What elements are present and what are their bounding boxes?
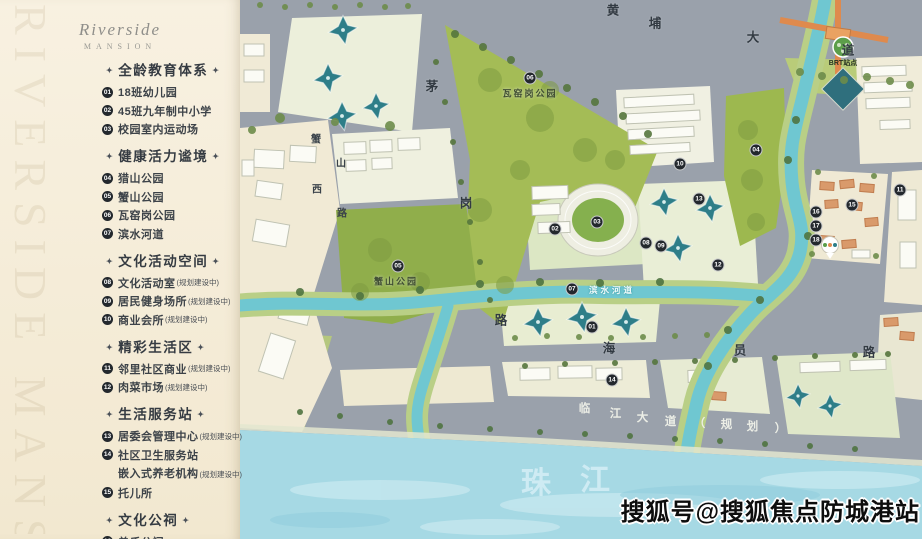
tree-icon	[257, 2, 263, 8]
tree-icon	[672, 436, 678, 442]
tree-icon	[747, 213, 765, 231]
tree-icon	[478, 68, 502, 92]
river-name-char: 江	[580, 455, 612, 499]
tree-icon	[792, 116, 800, 124]
legend-item-label: 校园室内运动场	[118, 121, 199, 137]
tree-icon	[526, 104, 554, 132]
tree-icon	[772, 355, 778, 361]
tree-icon	[612, 360, 618, 366]
legend-item-label: 托儿所	[118, 485, 153, 501]
legend-item-note: (规划建设中)	[165, 314, 208, 325]
legend-item-label: 45班九年制中小学	[118, 103, 212, 119]
tree-icon	[863, 73, 871, 81]
diamond-icon: ✦	[197, 343, 205, 352]
diamond-icon: ✦	[106, 343, 114, 352]
tree-icon	[591, 98, 599, 106]
diamond-icon: ✦	[197, 410, 205, 419]
legend-section-title: ✦健康活力谧境✦	[102, 145, 240, 165]
tree-icon	[815, 169, 821, 175]
river-name-char: 珠	[521, 458, 553, 502]
diamond-icon: ✦	[106, 516, 114, 525]
legend-item-note: (规划建设中)	[200, 470, 243, 479]
legend-item: 13居委会管理中心(规划建设中)	[102, 428, 240, 444]
tree-icon	[512, 335, 518, 341]
legend-item-note: (规划建设中)	[200, 431, 243, 442]
tree-icon	[477, 259, 483, 265]
diamond-icon: ✦	[106, 152, 114, 161]
tree-icon	[738, 120, 758, 140]
legend-item-label: 滨水河道	[118, 226, 164, 242]
tree-icon	[382, 4, 388, 10]
tree-icon	[536, 278, 544, 286]
tree-icon	[368, 238, 392, 262]
watermark-sohu: 搜狐号@搜狐焦点防城港站	[621, 492, 920, 527]
tree-icon	[437, 423, 443, 429]
tree-icon	[818, 72, 826, 80]
legend-item: 04猎山公园	[102, 170, 240, 186]
map-marker: 06	[524, 72, 537, 85]
tree-icon	[337, 413, 343, 419]
legend-item-label: 邻里社区商业	[118, 361, 187, 377]
tree-icon	[433, 59, 439, 65]
tree-icon	[885, 351, 891, 357]
tree-icon	[450, 139, 456, 145]
map-marker: 03	[591, 216, 604, 229]
legend-section-title-text: 全龄教育体系	[118, 63, 208, 78]
tree-icon	[496, 276, 514, 294]
map-marker: 14	[606, 374, 619, 387]
map-marker: 09	[655, 240, 668, 253]
legend-item: 05蟹山公园	[102, 189, 240, 205]
legend-section-title-text: 精彩生活区	[118, 340, 193, 355]
tree-icon	[873, 253, 879, 259]
legend-item-label: 居委会管理中心	[118, 428, 199, 444]
legend-item-number: 15	[102, 487, 113, 498]
tree-icon	[479, 43, 487, 51]
tree-icon	[275, 113, 285, 123]
tree-icon	[762, 441, 768, 447]
legend-item-number: 08	[102, 277, 113, 288]
tree-icon	[537, 429, 543, 435]
legend-item-number: 13	[102, 431, 113, 442]
tree-icon	[852, 446, 858, 452]
legend-item-number: 01	[102, 87, 113, 98]
map-marker: 11	[894, 184, 907, 197]
tree-icon	[906, 81, 914, 89]
map-marker: 05	[392, 260, 405, 273]
map-marker: 16	[810, 206, 823, 219]
tree-icon	[468, 198, 492, 222]
legend-item-number: 05	[102, 191, 113, 202]
legend-section: ✦健康活力谧境✦04猎山公园05蟹山公园06瓦窑岗公园07滨水河道	[102, 145, 240, 242]
legend-item-number: 12	[102, 382, 113, 393]
tree-icon	[596, 279, 604, 287]
legend-item-label: 猎山公园	[118, 170, 164, 186]
tree-icon	[405, 3, 411, 9]
legend-item-label: 社区卫生服务站	[118, 447, 199, 463]
legend-section: ✦精彩生活区✦11邻里社区商业(规划建设中)12肉菜市场(规划建设中)	[102, 336, 240, 396]
map-marker: 15	[846, 199, 859, 212]
tree-icon	[387, 419, 393, 425]
legend-item: 12肉菜市场(规划建设中)	[102, 379, 240, 395]
diamond-icon: ✦	[212, 257, 220, 266]
legend-section-title-text: 文化公祠	[118, 513, 178, 528]
legend-section-title: ✦全龄教育体系✦	[102, 59, 240, 79]
tree-icon	[507, 56, 515, 64]
map-marker: 13	[693, 193, 706, 206]
legend-item-number: 06	[102, 210, 113, 221]
tree-icon	[886, 77, 894, 85]
tree-icon	[573, 138, 597, 162]
tree-icon	[692, 358, 698, 364]
tree-icon	[652, 359, 658, 365]
tree-icon	[297, 409, 303, 415]
legend-item-label: 曾氏公祠	[118, 534, 164, 539]
legend-item: 16曾氏公祠	[102, 534, 240, 539]
legend-item-label: 肉菜市场	[118, 379, 164, 395]
brand-name: Riverside	[40, 20, 200, 40]
legend-item: 14社区卫生服务站	[102, 447, 240, 463]
legend-item-label: 瓦窑岗公园	[118, 207, 176, 223]
legend-sidebar: RIVERSIDE MANSION Riverside MANSION ✦全龄教…	[0, 0, 240, 539]
map-marker: 08	[640, 237, 653, 250]
legend-item-number: 14	[102, 449, 113, 460]
tree-icon	[522, 363, 528, 369]
legend-item-number: 07	[102, 228, 113, 239]
tree-icon	[442, 99, 448, 105]
legend-item-label: 商业会所	[118, 312, 164, 328]
map-marker: 17	[810, 220, 823, 233]
brt-station-icon	[833, 37, 853, 57]
map-marker: 01	[586, 321, 599, 334]
tree-icon	[741, 169, 763, 191]
legend-item-number: 04	[102, 173, 113, 184]
legend-item: 15托儿所	[102, 485, 240, 501]
legend-item: 0245班九年制中小学	[102, 103, 240, 119]
sidebar-watermark-text: RIVERSIDE MANSION	[4, 4, 57, 534]
legend-item-number: 09	[102, 296, 113, 307]
tree-icon	[331, 118, 339, 126]
tree-icon	[487, 297, 493, 303]
tree-icon	[416, 286, 424, 294]
legend-item: 07滨水河道	[102, 226, 240, 242]
legend-item: 08文化活动室(规划建设中)	[102, 275, 240, 291]
legend-item-label: 18班幼儿园	[118, 84, 177, 100]
tree-icon	[332, 4, 338, 10]
master-plan-map: 黄埔大道茅岗路蟹山西路海员路临江大道（规划）瓦窑岗公园蟹山公园滨水河道BRT站点…	[240, 0, 922, 539]
brand-logo: Riverside MANSION	[40, 20, 200, 51]
legend-item-line2: 嵌入式养老机构(规划建设中)	[102, 464, 240, 482]
legend-section-title: ✦精彩生活区✦	[102, 336, 240, 356]
legend-section-title: ✦生活服务站✦	[102, 403, 240, 423]
tree-icon	[732, 357, 738, 363]
tree-icon	[672, 333, 678, 339]
legend-item: 03校园室内运动场	[102, 121, 240, 137]
map-marker: 02	[549, 223, 562, 236]
legend-item-note: (规划建设中)	[188, 296, 231, 307]
tree-icon	[756, 296, 764, 304]
tree-icon	[619, 112, 627, 120]
legend-item-label: 蟹山公园	[118, 189, 164, 205]
tree-icon	[724, 326, 732, 334]
brand-subname: MANSION	[40, 42, 200, 51]
legend-item-number: 10	[102, 314, 113, 325]
legend-section: ✦文化公祠✦16曾氏公祠17李氏公祠18梁氏公祠	[102, 509, 240, 539]
diamond-icon: ✦	[182, 516, 190, 525]
legend-item-label: 居民健身场所	[118, 293, 187, 309]
diamond-icon: ✦	[106, 410, 114, 419]
legend-section: ✦生活服务站✦13居委会管理中心(规划建设中)14社区卫生服务站嵌入式养老机构(…	[102, 403, 240, 501]
legend-item: 11邻里社区商业(规划建设中)	[102, 361, 240, 377]
tree-icon	[307, 2, 313, 8]
tree-icon	[356, 292, 364, 300]
legend-item-note: (规划建设中)	[177, 277, 220, 288]
tree-icon	[544, 333, 550, 339]
project-pin-icon	[821, 236, 839, 258]
legend-item-number: 02	[102, 105, 113, 116]
tree-icon	[385, 121, 395, 131]
tree-icon	[510, 160, 530, 180]
legend-item: 09居民健身场所(规划建设中)	[102, 293, 240, 309]
tree-icon	[784, 156, 792, 164]
tree-icon	[809, 251, 815, 257]
tree-icon	[812, 353, 818, 359]
tree-icon	[605, 150, 625, 170]
legend-item-label: 嵌入式养老机构	[118, 468, 199, 480]
tree-icon	[717, 438, 723, 444]
legend-item-note: (规划建设中)	[165, 382, 208, 393]
legend-item: 10商业会所(规划建设中)	[102, 312, 240, 328]
map-marker: 10	[674, 158, 687, 171]
diamond-icon: ✦	[106, 257, 114, 266]
diamond-icon: ✦	[106, 66, 114, 75]
map-marker: 04	[750, 144, 763, 157]
legend-item: 06瓦窑岗公园	[102, 207, 240, 223]
tree-icon	[840, 76, 848, 84]
legend-list: ✦全龄教育体系✦0118班幼儿园0245班九年制中小学03校园室内运动场✦健康活…	[102, 59, 240, 539]
tree-icon	[796, 68, 804, 76]
tree-icon	[582, 431, 588, 437]
tree-icon	[451, 30, 459, 38]
diamond-icon: ✦	[212, 66, 220, 75]
map-marker: 07	[566, 283, 579, 296]
legend-section: ✦全龄教育体系✦0118班幼儿园0245班九年制中小学03校园室内运动场	[102, 59, 240, 137]
tree-icon	[608, 335, 614, 341]
legend-item-number: 11	[102, 363, 113, 374]
tree-icon	[627, 433, 633, 439]
tree-icon	[644, 130, 652, 138]
diamond-icon: ✦	[212, 152, 220, 161]
screenshot-root: RIVERSIDE MANSION Riverside MANSION ✦全龄教…	[0, 0, 922, 539]
tree-icon	[467, 219, 473, 225]
legend-item-number: 03	[102, 124, 113, 135]
legend-item: 0118班幼儿园	[102, 84, 240, 100]
tree-icon	[541, 81, 559, 99]
tree-icon	[562, 361, 568, 367]
tree-icon	[576, 334, 582, 340]
map-marker: 12	[712, 259, 725, 272]
tree-icon	[704, 362, 712, 370]
tree-icon	[296, 288, 304, 296]
legend-section-title: ✦文化活动空间✦	[102, 250, 240, 270]
tree-icon	[852, 352, 858, 358]
legend-item-label: 文化活动室	[118, 275, 176, 291]
tree-icon	[282, 4, 288, 10]
tree-icon	[248, 126, 256, 134]
legend-section-title-text: 生活服务站	[118, 407, 193, 422]
tree-icon	[563, 84, 571, 92]
legend-section-title-text: 健康活力谧境	[118, 149, 208, 164]
tree-icon	[704, 332, 710, 338]
tree-icon	[357, 2, 363, 8]
tree-icon	[458, 179, 464, 185]
legend-item-note: (规划建设中)	[188, 363, 231, 374]
legend-section-title-text: 文化活动空间	[118, 254, 208, 269]
tree-icon	[640, 334, 646, 340]
legend-section: ✦文化活动空间✦08文化活动室(规划建设中)09居民健身场所(规划建设中)10商…	[102, 250, 240, 328]
tree-icon	[807, 443, 813, 449]
tree-icon	[656, 278, 664, 286]
tree-icon	[476, 280, 484, 288]
tree-icon	[487, 426, 493, 432]
tree-icon	[871, 173, 877, 179]
legend-section-title: ✦文化公祠✦	[102, 509, 240, 529]
